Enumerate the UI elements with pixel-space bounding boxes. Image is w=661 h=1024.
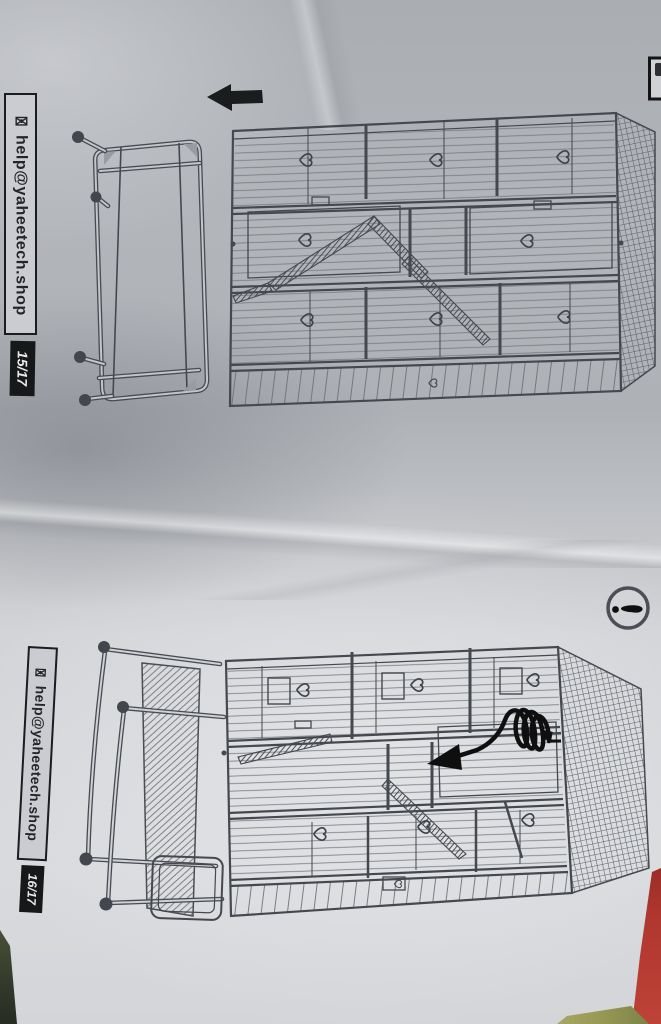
contact-label-box: ✉ help@yaheetech.shop (4, 93, 37, 335)
page15-label: ✉ help@yaheetech.shop 15/17 (4, 93, 37, 396)
instruction-line-art (0, 0, 661, 1024)
page-number-badge: 15/17 (10, 341, 36, 396)
envelope-icon: ✉ (11, 112, 30, 132)
caster-stand-diagram (72, 131, 207, 406)
arrow-left-icon (207, 84, 263, 111)
page-number-badge: 16/17 (19, 865, 44, 913)
exclamation-circle-icon (608, 588, 648, 628)
caster-wheels (80, 641, 130, 911)
side-mesh-panel (142, 663, 200, 916)
contact-email: help@yaheetech.shop (12, 135, 30, 316)
contact-email: help@yaheetech.shop (25, 685, 49, 841)
cage-diagram (230, 113, 655, 406)
envelope-icon: ✉ (33, 666, 50, 683)
cropped-envelope-icon (650, 58, 661, 99)
photo-canvas: ✉ help@yaheetech.shop 15/17 ✉ help@yahee… (0, 0, 661, 1024)
cage-on-stand-diagram (80, 641, 650, 920)
